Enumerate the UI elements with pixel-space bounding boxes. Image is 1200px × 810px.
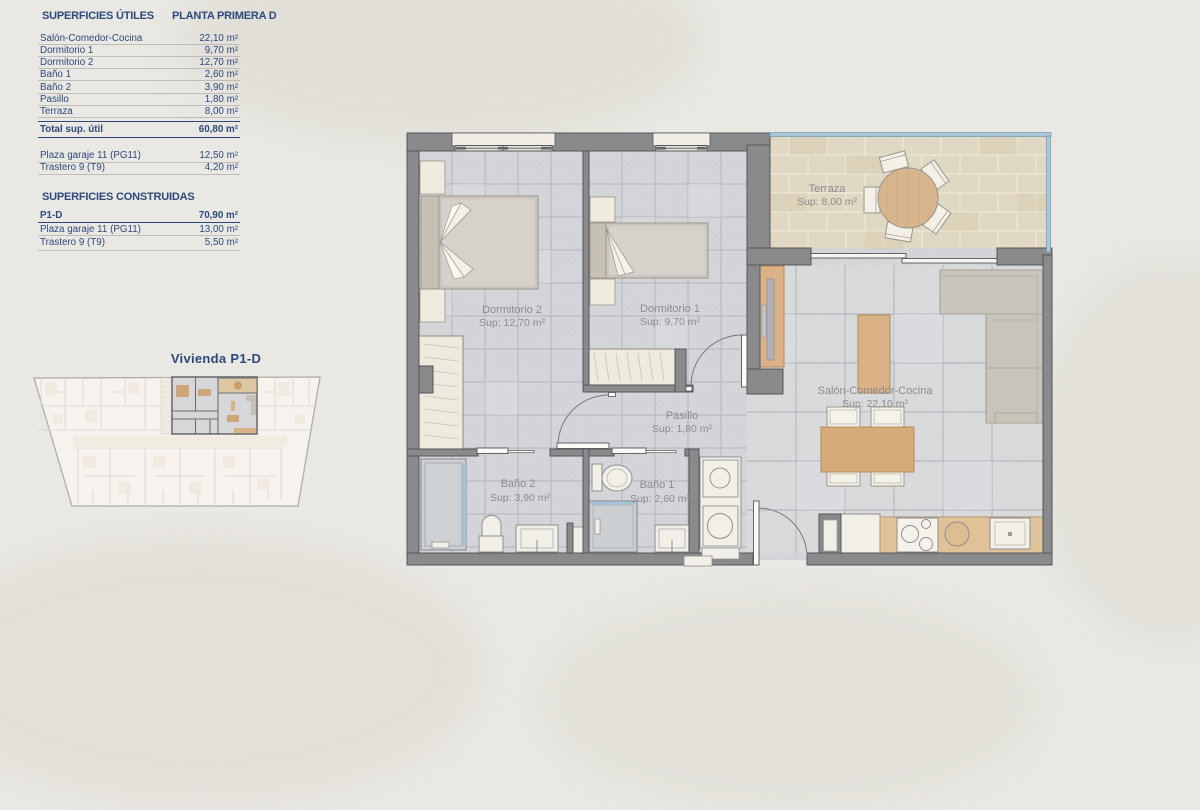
svg-text:Sup: 8,00 m²: Sup: 8,00 m² [797, 196, 858, 208]
svg-text:Sup: 22,10 m²: Sup: 22,10 m² [842, 398, 908, 410]
svg-text:Sup: 9,70 m²: Sup: 9,70 m² [640, 316, 701, 328]
svg-text:Pasillo: Pasillo [666, 410, 698, 422]
svg-text:Baño 2: Baño 2 [501, 478, 536, 490]
svg-text:Salón-Comedor-Cocina: Salón-Comedor-Cocina [818, 385, 934, 397]
svg-text:Sup: 2,60 m²: Sup: 2,60 m² [630, 493, 691, 505]
svg-text:Baño 1: Baño 1 [640, 479, 675, 491]
svg-text:Terraza: Terraza [809, 183, 847, 195]
svg-text:Sup: 3,90 m²: Sup: 3,90 m² [490, 492, 551, 504]
svg-text:Sup: 1,80 m²: Sup: 1,80 m² [652, 423, 713, 435]
svg-text:Dormitorio 2: Dormitorio 2 [482, 304, 542, 316]
svg-text:Dormitorio 1: Dormitorio 1 [640, 303, 700, 315]
svg-text:Sup: 12,70 m²: Sup: 12,70 m² [479, 317, 545, 329]
